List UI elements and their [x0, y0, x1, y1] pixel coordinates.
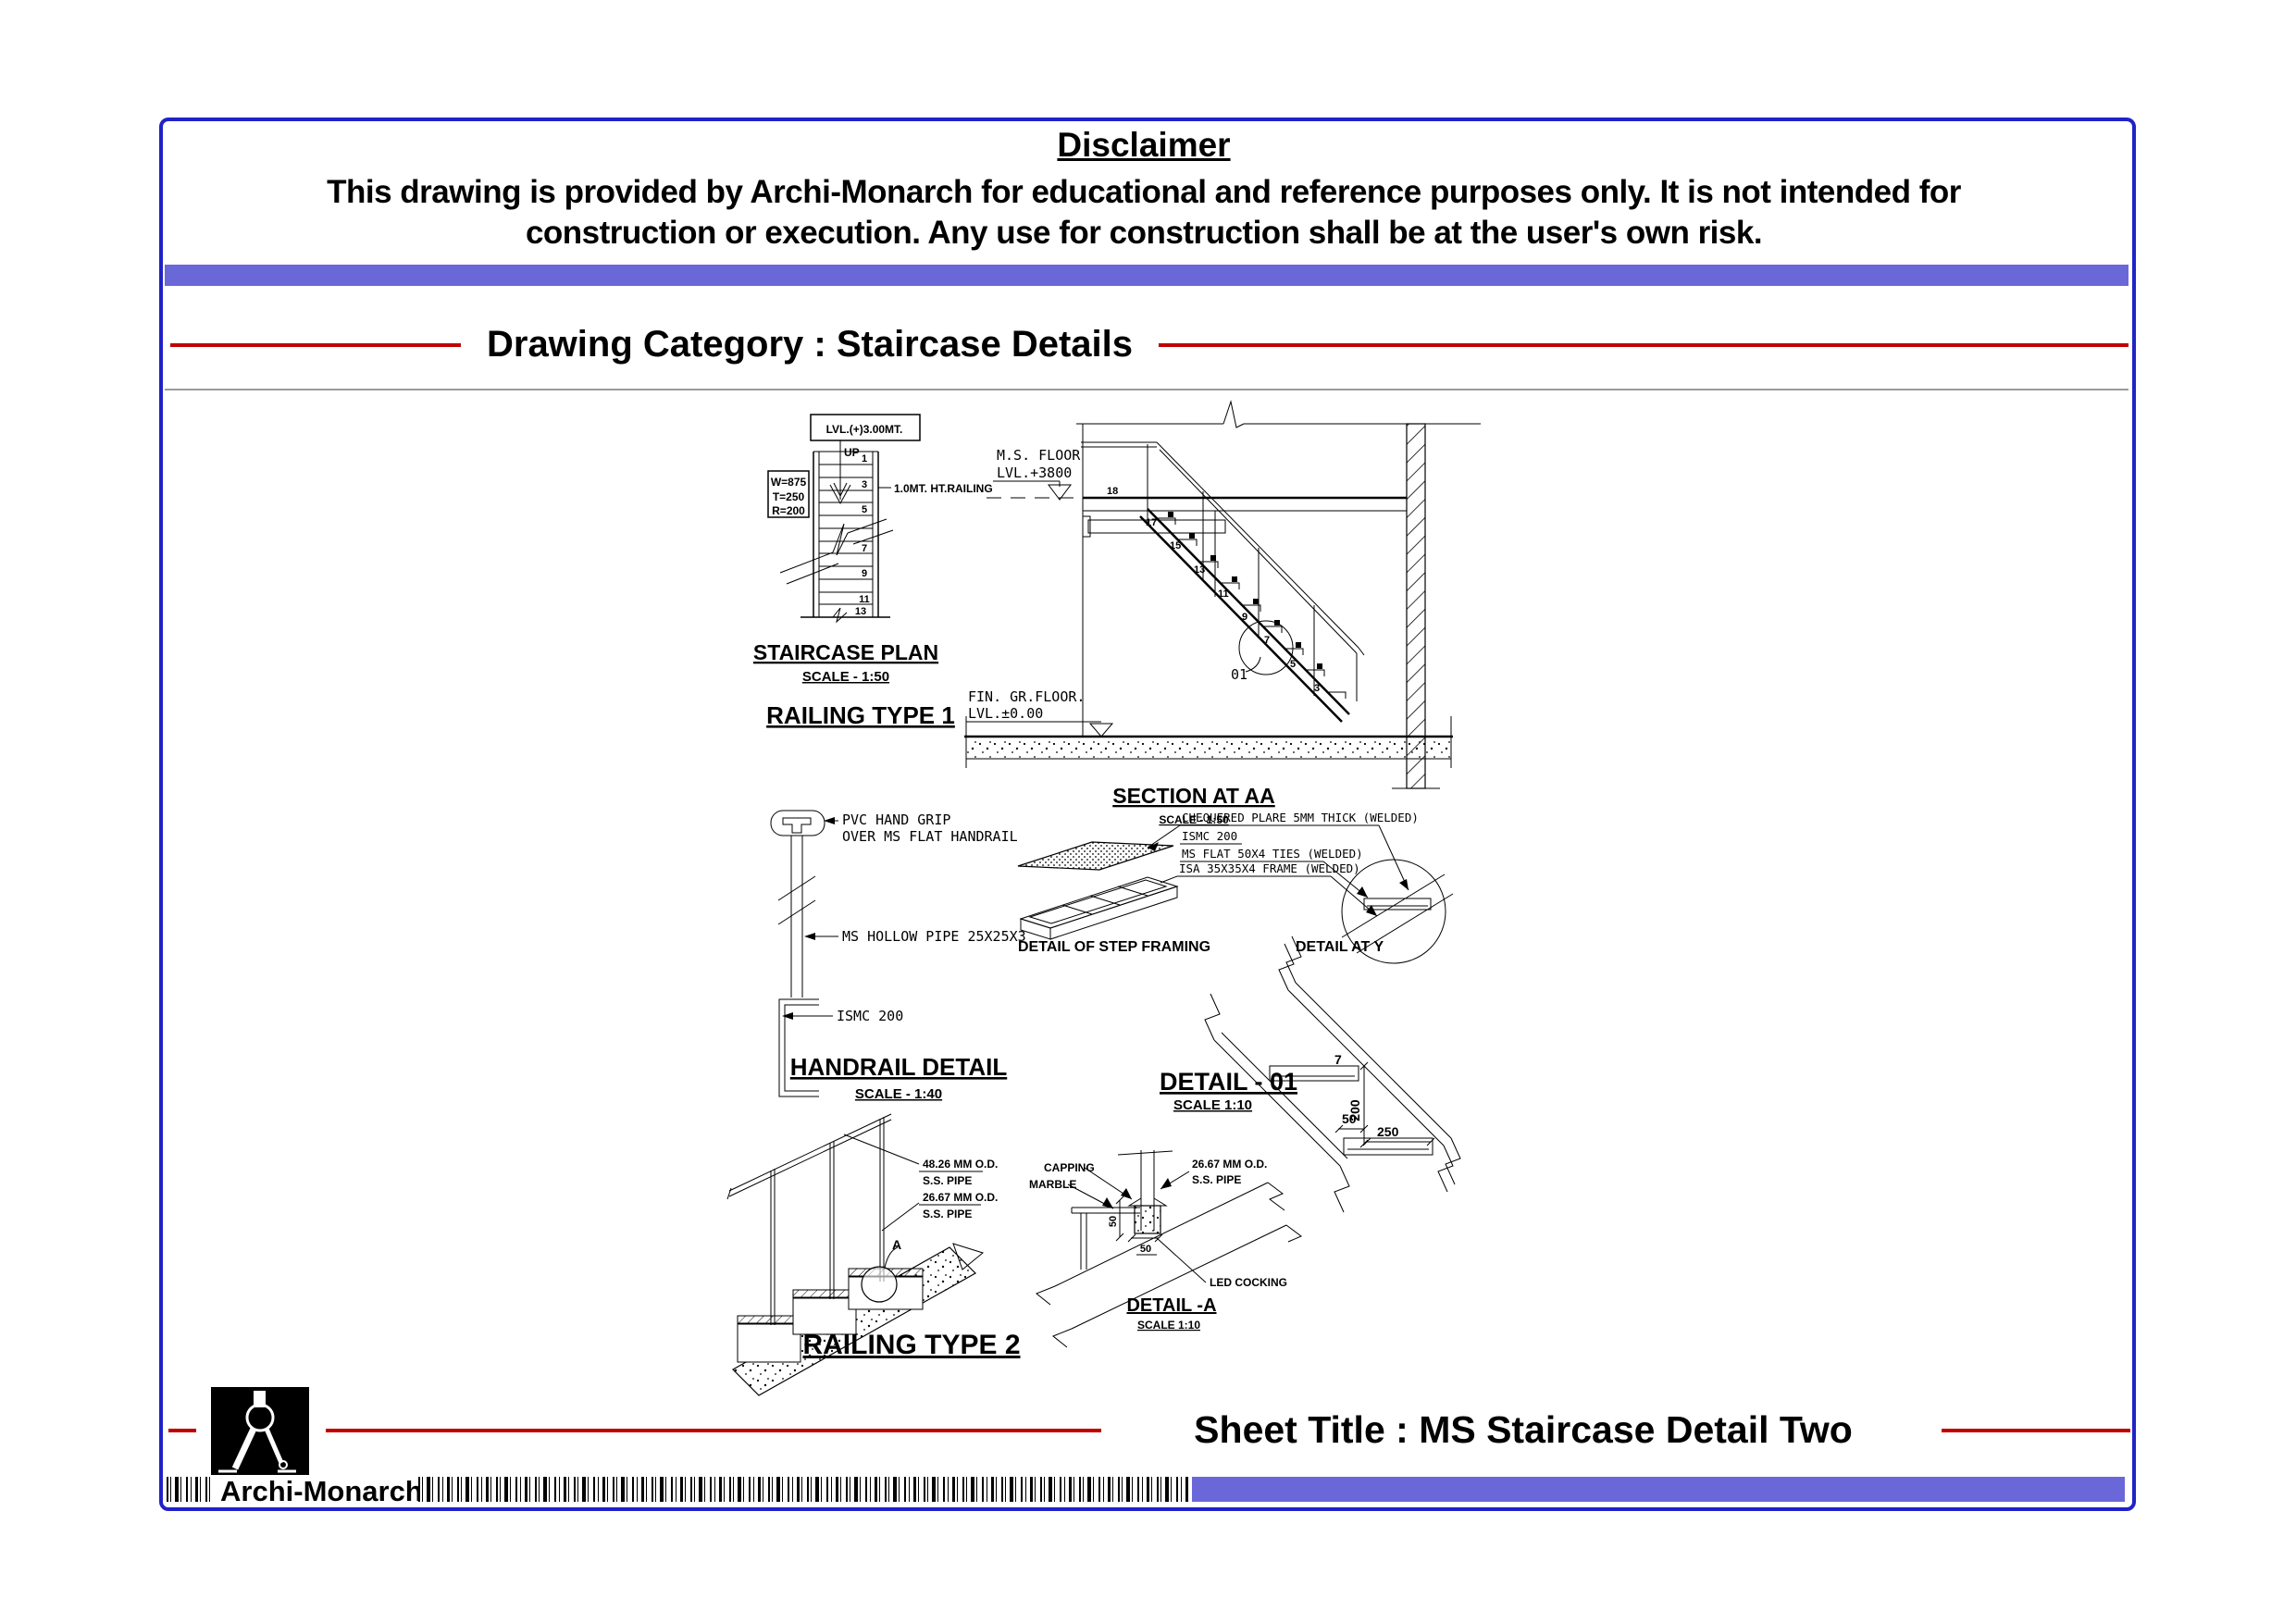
- detail-a-marble: MARBLE: [1029, 1178, 1076, 1191]
- detail-y-title: DETAIL AT Y: [1296, 939, 1384, 955]
- railing2-pipe2-type: S.S. PIPE: [923, 1208, 972, 1220]
- step-framing-text: CHEQUERED PLARE 5MM THICK (WELDED) ISMC …: [1018, 811, 1419, 955]
- section-step-5: 5: [1290, 659, 1296, 670]
- section-msfloor-label: M.S. FLOOR: [997, 447, 1081, 464]
- detail-a-dim-50h: 50: [1140, 1244, 1151, 1255]
- section-step-17: 17: [1146, 517, 1157, 528]
- plan-step-11: 11: [859, 594, 870, 605]
- plan-step-1: 1: [862, 453, 867, 465]
- plan-step-3: 3: [862, 479, 867, 490]
- railing-type1-title: RAILING TYPE 1: [766, 701, 955, 729]
- railing2-pipe1-type: S.S. PIPE: [923, 1174, 972, 1187]
- section-grfloor-level: LVL.±0.00: [968, 705, 1043, 722]
- handrail-pipe-note: MS HOLLOW PIPE 25X25X3: [842, 928, 1026, 945]
- section-step-9: 9: [1242, 612, 1247, 623]
- railing2-a-marker: A: [892, 1237, 901, 1252]
- section-step-7: 7: [1264, 635, 1270, 646]
- section-grfloor-label: FIN. GR.FLOOR.: [968, 688, 1085, 705]
- step-framing-title: DETAIL OF STEP FRAMING: [1018, 939, 1210, 955]
- plan-dim-r: R=200: [772, 504, 805, 517]
- section-step-3: 3: [1314, 683, 1320, 694]
- railing2-pipe1-od: 48.26 MM O.D.: [923, 1158, 998, 1171]
- framing-note-isa-frame: ISA 35X35X4 FRAME (WELDED): [1179, 861, 1360, 875]
- detail-a-pipe-type: S.S. PIPE: [1192, 1173, 1241, 1186]
- detail01-dim-50: 50: [1342, 1111, 1357, 1126]
- staircase-plan-scale: SCALE - 1:50: [802, 669, 889, 685]
- handrail-title: HANDRAIL DETAIL: [790, 1053, 1008, 1081]
- plan-railing-note: 1.0MT. HT.RAILING: [894, 482, 993, 495]
- handrail-grip-note-1: PVC HAND GRIP: [842, 811, 950, 828]
- plan-dim-t: T=250: [773, 490, 805, 503]
- section-msfloor-level: LVL.+3800: [997, 465, 1072, 481]
- section-step-13: 13: [1194, 564, 1205, 576]
- detail-01-title: DETAIL - 01: [1160, 1068, 1297, 1096]
- handrail-grip-note-2: OVER MS FLAT HANDRAIL: [842, 828, 1018, 845]
- detail-a-led-note: LED COCKING: [1210, 1276, 1287, 1289]
- detail-a-title: DETAIL -A: [1126, 1295, 1216, 1316]
- handrail-text: PVC HAND GRIP OVER MS FLAT HANDRAIL MS H…: [790, 811, 1026, 1102]
- section-title: SECTION AT AA: [1112, 784, 1274, 808]
- railing2-pipe2-od: 26.67 MM O.D.: [923, 1191, 998, 1204]
- detail-a-dim-50v: 50: [1108, 1216, 1119, 1227]
- framing-note-chequered: CHEQUERED PLARE 5MM THICK (WELDED): [1182, 811, 1419, 824]
- railing2-text: 48.26 MM O.D. S.S. PIPE 26.67 MM O.D. S.…: [802, 1158, 1020, 1360]
- drawing-sheet: Disclaimer This drawing is provided by A…: [0, 0, 2296, 1623]
- framing-note-flat-ties: MS FLAT 50X4 TIES (WELDED): [1182, 847, 1363, 861]
- detail-a-scale: SCALE 1:10: [1137, 1319, 1200, 1332]
- plan-step-9: 9: [862, 568, 867, 579]
- plan-dim-w: W=875: [771, 476, 807, 489]
- section-step-15: 15: [1170, 540, 1181, 551]
- detail01-dim-250: 250: [1377, 1124, 1399, 1139]
- section-step-11: 11: [1218, 588, 1229, 600]
- section-text: M.S. FLOOR LVL.+3800 FIN. GR.FLOOR. LVL.…: [968, 447, 1320, 826]
- railing-type2-title: RAILING TYPE 2: [802, 1330, 1020, 1360]
- detail-01-scale: SCALE 1:10: [1173, 1097, 1252, 1113]
- staircase-plan-title: STAIRCASE PLAN: [753, 640, 938, 664]
- plan-up-label: UP: [844, 446, 860, 459]
- detail01-dim-7: 7: [1334, 1052, 1342, 1067]
- detail-a-pipe-od: 26.67 MM O.D.: [1192, 1158, 1267, 1171]
- handrail-ismc-note: ISMC 200: [837, 1008, 903, 1024]
- detail-a-capping: CAPPING: [1044, 1161, 1095, 1174]
- plan-step-7: 7: [862, 543, 867, 554]
- section-step-18: 18: [1107, 486, 1118, 497]
- plan-step-5: 5: [862, 504, 867, 515]
- framing-note-ismc: ISMC 200: [1182, 829, 1237, 843]
- detail-a-text: CAPPING MARBLE 26.67 MM O.D. S.S. PIPE 5…: [1029, 1158, 1287, 1332]
- drawing-canvas: LVL.(+)3.00MT. UP W=875 T=250 R=200 1.0M…: [0, 0, 2296, 1623]
- plan-step-13: 13: [855, 606, 866, 617]
- section-detail-marker: 01: [1231, 666, 1247, 683]
- handrail-scale: SCALE - 1:40: [855, 1086, 942, 1102]
- plan-level-box-label: LVL.(+)3.00MT.: [826, 423, 903, 436]
